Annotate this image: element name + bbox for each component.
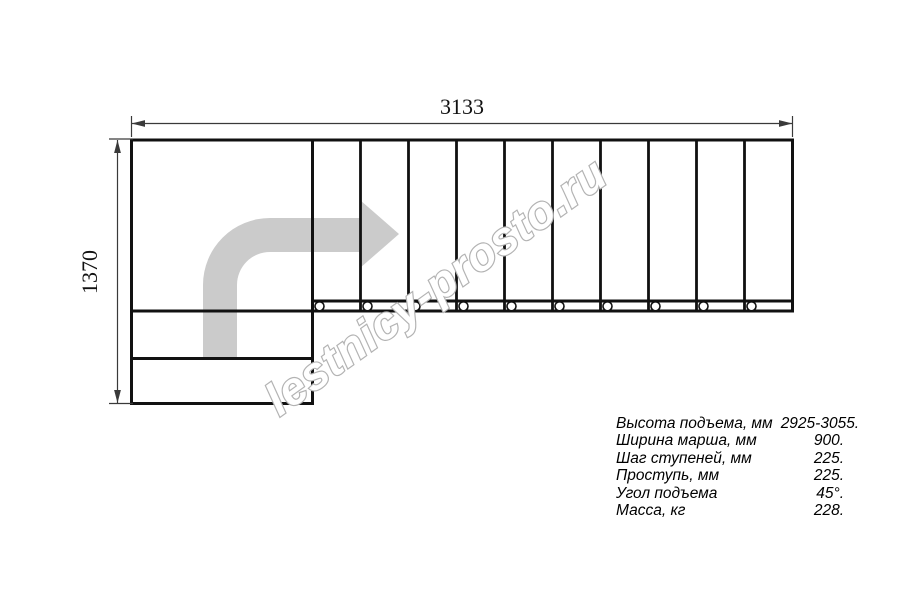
left-dim-arrow-bottom	[114, 390, 121, 403]
left-dimension-value: 1370	[77, 250, 102, 294]
spec-value: 45°.	[816, 485, 844, 502]
step-fastener-circle	[507, 302, 516, 311]
watermark-text: lestnicy-prosto.ru	[255, 147, 616, 425]
step-fastener-circle	[459, 302, 468, 311]
spec-value: 225.	[814, 450, 844, 467]
spec-row: Шаг ступеней, мм 225.	[616, 450, 844, 467]
step-fastener-circle	[651, 302, 660, 311]
spec-label: Угол подъема	[616, 485, 725, 502]
spec-row: Ширина марша, мм 900.	[616, 432, 844, 449]
spec-value: 2925-3055.	[781, 415, 859, 432]
left-dim-arrow-top	[114, 140, 121, 153]
step-fastener-circle	[555, 302, 564, 311]
blueprint-canvas: 3133 1370 lestnicy-prosto.ru Высота подъ…	[0, 0, 900, 600]
spec-value: 225.	[814, 467, 844, 484]
spec-row: Угол подъема 45°.	[616, 485, 844, 502]
step-fastener-circle	[603, 302, 612, 311]
spec-label: Проступь, мм	[616, 467, 727, 484]
spec-value: 228.	[814, 502, 844, 519]
spec-label: Масса, кг	[616, 502, 693, 519]
step-fastener-circle	[699, 302, 708, 311]
top-dim-arrow-left	[132, 120, 146, 127]
spec-label: Высота подъема, мм	[616, 415, 781, 432]
spec-row: Масса, кг 228.	[616, 502, 844, 519]
spec-table: Высота подъема, мм 2925-3055. Ширина мар…	[616, 415, 844, 520]
spec-label: Ширина марша, мм	[616, 432, 765, 449]
spec-value: 900.	[814, 432, 844, 449]
top-dim-arrow-right	[779, 120, 793, 127]
step-fastener-circle	[747, 302, 756, 311]
spec-row: Проступь, мм 225.	[616, 467, 844, 484]
top-dimension-value: 3133	[440, 94, 484, 119]
step-fastener-circle	[315, 302, 324, 311]
spec-label: Шаг ступеней, мм	[616, 450, 760, 467]
spec-row: Высота подъема, мм 2925-3055.	[616, 415, 844, 432]
